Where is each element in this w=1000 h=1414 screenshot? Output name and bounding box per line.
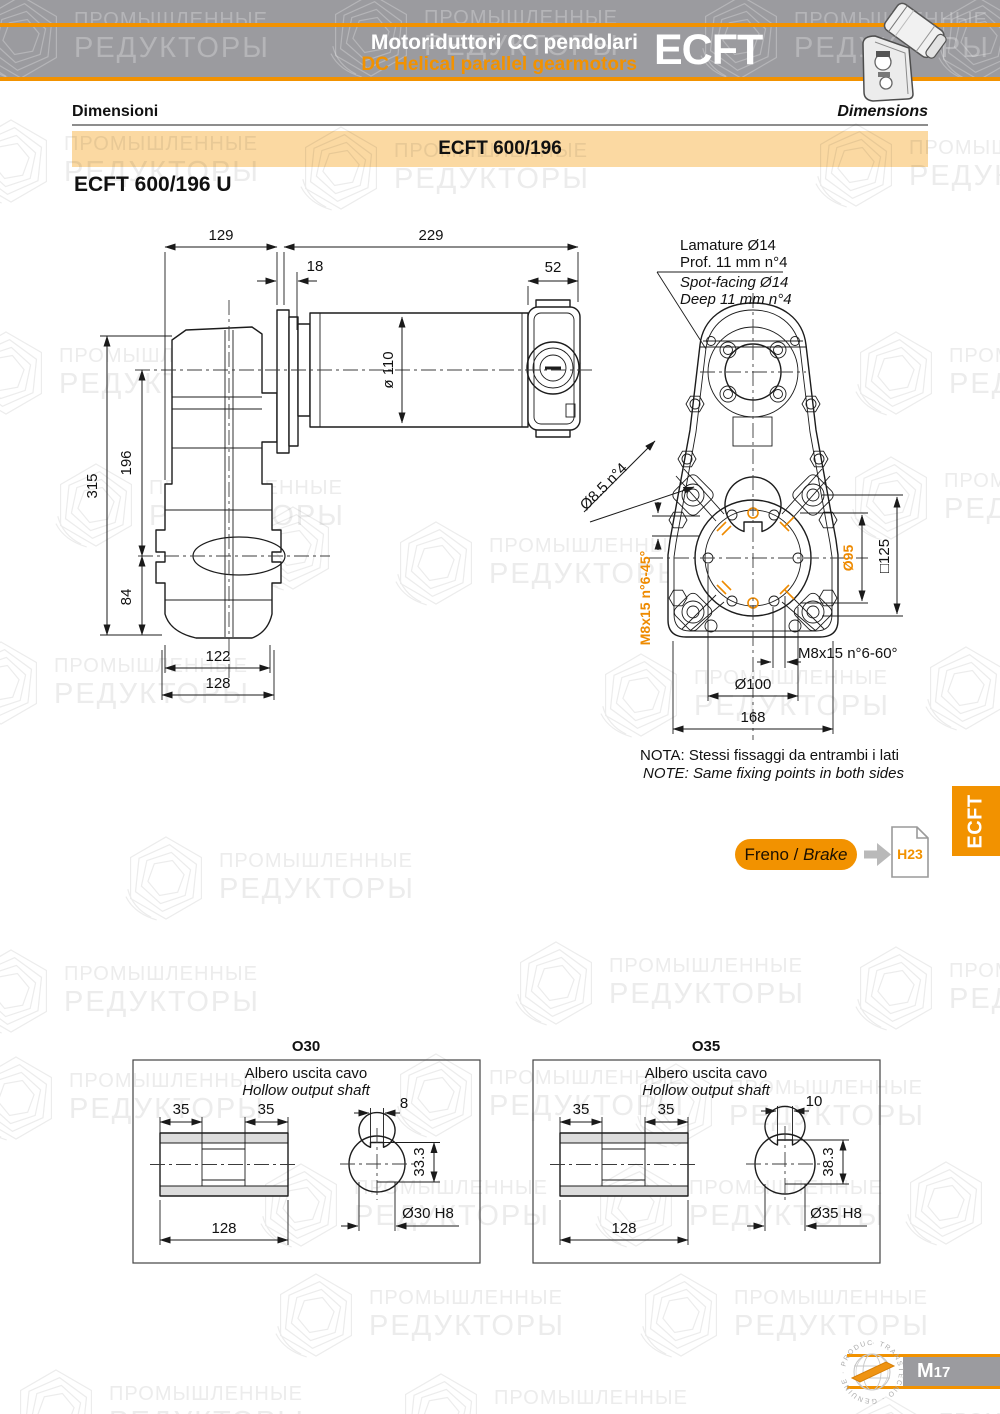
- o35-subtitle-it: Albero uscita cavo: [645, 1065, 768, 1082]
- dim-315: 315: [84, 473, 101, 498]
- dim-229: 229: [418, 227, 443, 244]
- o30-dim-key-depth: 33.3: [411, 1147, 428, 1176]
- o35-dim-35-right: 35: [658, 1101, 675, 1118]
- dim-168: 168: [740, 709, 765, 726]
- o30-dim-bore: Ø30 H8: [402, 1205, 454, 1222]
- hexagon-logo-icon: [15, 1368, 97, 1414]
- chapter-tab-label: ECFT: [965, 794, 988, 848]
- dim-122: 122: [205, 648, 230, 665]
- note-english: NOTE: Same fixing points in both sides: [643, 765, 904, 782]
- note-italian: NOTA: Stessi fissaggi da entrambi i lati: [640, 747, 899, 764]
- watermark-line1: ПРОМЫШЛЕННЫЕ: [109, 1383, 305, 1406]
- o35-dim-bore: Ø35 H8: [810, 1205, 862, 1222]
- watermark-line1: ПРОМЫШЛЕННЫЕ: [949, 960, 1000, 983]
- dimension-drawings: 129 229 18 52 ø 110 315 196 84 122: [0, 0, 1000, 800]
- footer-page-band: M 17: [903, 1357, 1000, 1386]
- footer-page-letter: M: [917, 1357, 934, 1386]
- watermark-line2: РЕДУКТОРЫ: [369, 1310, 565, 1343]
- watermark: ПРОМЫШЛЕННЫЕ РЕДУКТОРЫ: [125, 835, 415, 921]
- front-view-drawing: Lamature Ø14 Prof. 11 mm n°4 Spot-facing…: [577, 237, 905, 782]
- watermark-line2: РЕДУКТОРЫ: [109, 1406, 305, 1414]
- watermark-line2: РЕДУКТОРЫ: [494, 1410, 690, 1414]
- output-shaft-drawings: O30 Albero uscita cavo Hollow output sha…: [0, 1000, 1000, 1300]
- watermark-line1: ПРОМЫШЛЕННЫЕ: [64, 963, 260, 986]
- brake-label-english: Brake: [803, 845, 847, 865]
- o35-dim-128: 128: [611, 1220, 636, 1237]
- o30-subtitle-en: Hollow output shaft: [242, 1082, 370, 1099]
- watermark-line1: ПРОМЫШЛЕННЫЕ: [939, 1410, 1000, 1414]
- spotface-note-en-2: Deep 11 mm n°4: [680, 291, 792, 308]
- brake-badge: Freno / Brake: [735, 839, 857, 870]
- o30-dim-128: 128: [211, 1220, 236, 1237]
- o35-dim-35-left: 35: [573, 1101, 590, 1118]
- arrow-right-icon: [864, 842, 892, 867]
- spotface-note-it-2: Prof. 11 mm n°4: [680, 254, 787, 271]
- page-ref-label: H23: [891, 846, 929, 862]
- dim-125: □125: [876, 539, 893, 573]
- spotface-note-en-1: Spot-facing Ø14: [680, 274, 788, 291]
- side-view-drawing: 129 229 18 52 ø 110 315 196 84 122: [84, 227, 592, 700]
- dim-tap45: M8x15 n°6-45°: [637, 551, 653, 645]
- o35-title: O35: [692, 1038, 720, 1055]
- spotface-note-it-1: Lamature Ø14: [680, 237, 776, 254]
- o30-dim-key-width: 8: [400, 1095, 408, 1112]
- dim-128: 128: [205, 675, 230, 692]
- catalog-page: ПРОМЫШЛЕННЫЕ РЕДУКТОРЫ ПРОМЫШЛЕННЫЕ РЕДУ…: [0, 0, 1000, 1414]
- dim-84: 84: [118, 589, 135, 606]
- o35-subtitle-en: Hollow output shaft: [642, 1082, 770, 1099]
- watermark-line1: ПРОМЫШЛЕННЫЕ: [609, 955, 805, 978]
- watermark-line1: ПРОМЫШЛЕННЫЕ: [494, 1387, 690, 1410]
- dim-18: 18: [307, 258, 324, 275]
- dim-129: 129: [208, 227, 233, 244]
- dim-100: Ø100: [735, 676, 772, 693]
- dim-110: ø 110: [380, 351, 397, 388]
- o35-dim-key-width: 10: [806, 1093, 823, 1110]
- watermark: ПРОМЫШЛЕННЫЕ РЕДУКТОРЫ: [400, 1372, 690, 1414]
- dim-holes: Ø8.5 n°4: [577, 460, 631, 514]
- watermark: ПРОМЫШЛЕННЫЕ РЕДУКТОРЫ: [15, 1368, 305, 1414]
- o30-subtitle-it: Albero uscita cavo: [245, 1065, 368, 1082]
- dim-196: 196: [118, 450, 135, 475]
- o30-dim-35-left: 35: [173, 1101, 190, 1118]
- hexagon-logo-icon: [125, 835, 207, 921]
- brake-page-ref[interactable]: H23: [891, 826, 929, 878]
- hexagon-logo-icon: [400, 1372, 482, 1414]
- footer-page-number: 17: [934, 1364, 951, 1381]
- o30-panel: O30 Albero uscita cavo Hollow output sha…: [133, 1038, 480, 1263]
- o30-dim-35-right: 35: [258, 1101, 275, 1118]
- gearmotor-photo: [851, 2, 961, 104]
- brake-label-italian: Freno /: [744, 845, 798, 865]
- watermark-line1: ПРОМЫШЛЕННЫЕ: [219, 850, 415, 873]
- watermark-line2: РЕДУКТОРЫ: [219, 873, 415, 906]
- dim-tap60: M8x15 n°6-60°: [798, 645, 898, 662]
- dim-52: 52: [545, 259, 562, 276]
- transtecno-stamp: · TRANSTECNO · GENUINE · PRODUCTS: [836, 1336, 908, 1408]
- o35-panel: O35 Albero uscita cavo Hollow output sha…: [533, 1038, 880, 1263]
- dim-95: Ø95: [840, 545, 856, 572]
- o30-title: O30: [292, 1038, 320, 1055]
- o35-dim-key-depth: 38.3: [820, 1147, 837, 1176]
